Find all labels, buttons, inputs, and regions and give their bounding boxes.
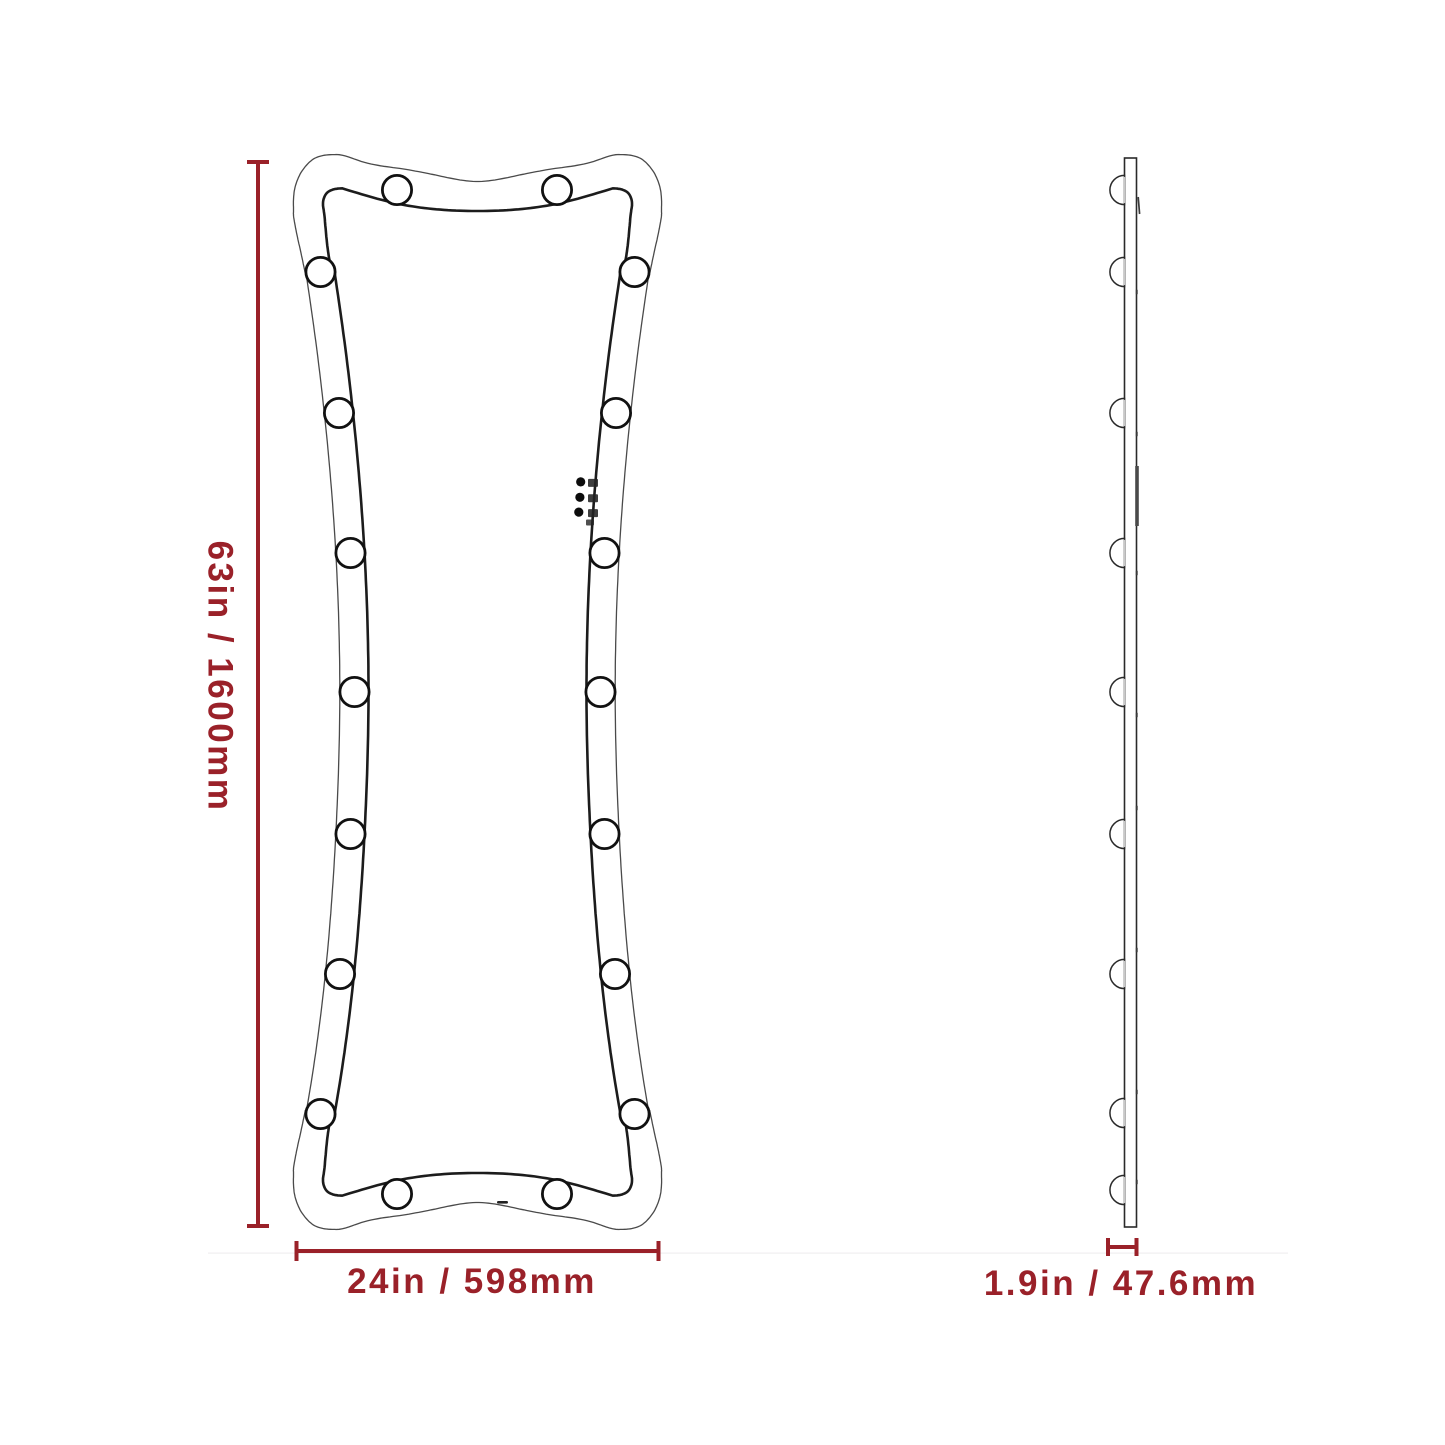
svg-text:1.9in / 47.6mm: 1.9in / 47.6mm — [984, 1264, 1258, 1303]
svg-text:63in / 1600mm: 63in / 1600mm — [201, 541, 240, 813]
svg-text:24in / 598mm: 24in / 598mm — [347, 1262, 597, 1301]
